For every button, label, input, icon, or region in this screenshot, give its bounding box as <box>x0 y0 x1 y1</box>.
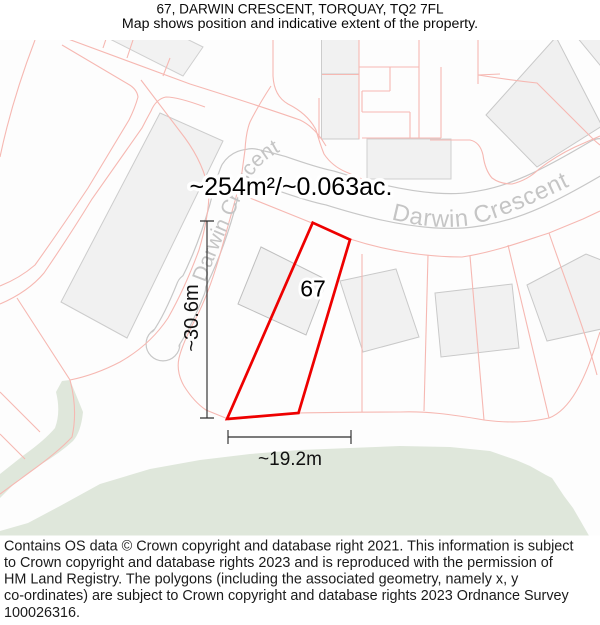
svg-text:to Crown copyright and databas: to Crown copyright and database rights 2… <box>4 555 554 571</box>
svg-text:HM Land Registry. The polygons: HM Land Registry. The polygons (includin… <box>4 571 519 587</box>
svg-text:~30.6m: ~30.6m <box>181 284 203 351</box>
svg-text:Contains OS data © Crown copyr: Contains OS data © Crown copyright and d… <box>4 539 573 555</box>
svg-text:co-ordinates) are subject to C: co-ordinates) are subject to Crown copyr… <box>4 588 570 604</box>
svg-text:67, DARWIN CRESCENT, TORQUAY,: 67, DARWIN CRESCENT, TORQUAY, TQ2 7FL <box>156 2 443 17</box>
svg-text:~254m²/~0.063ac.: ~254m²/~0.063ac. <box>190 173 393 201</box>
svg-text:100026316.: 100026316. <box>4 605 80 621</box>
svg-text:67: 67 <box>300 276 326 302</box>
svg-text:Map shows position and indicat: Map shows position and indicative extent… <box>122 16 478 32</box>
svg-text:~19.2m: ~19.2m <box>258 449 322 470</box>
